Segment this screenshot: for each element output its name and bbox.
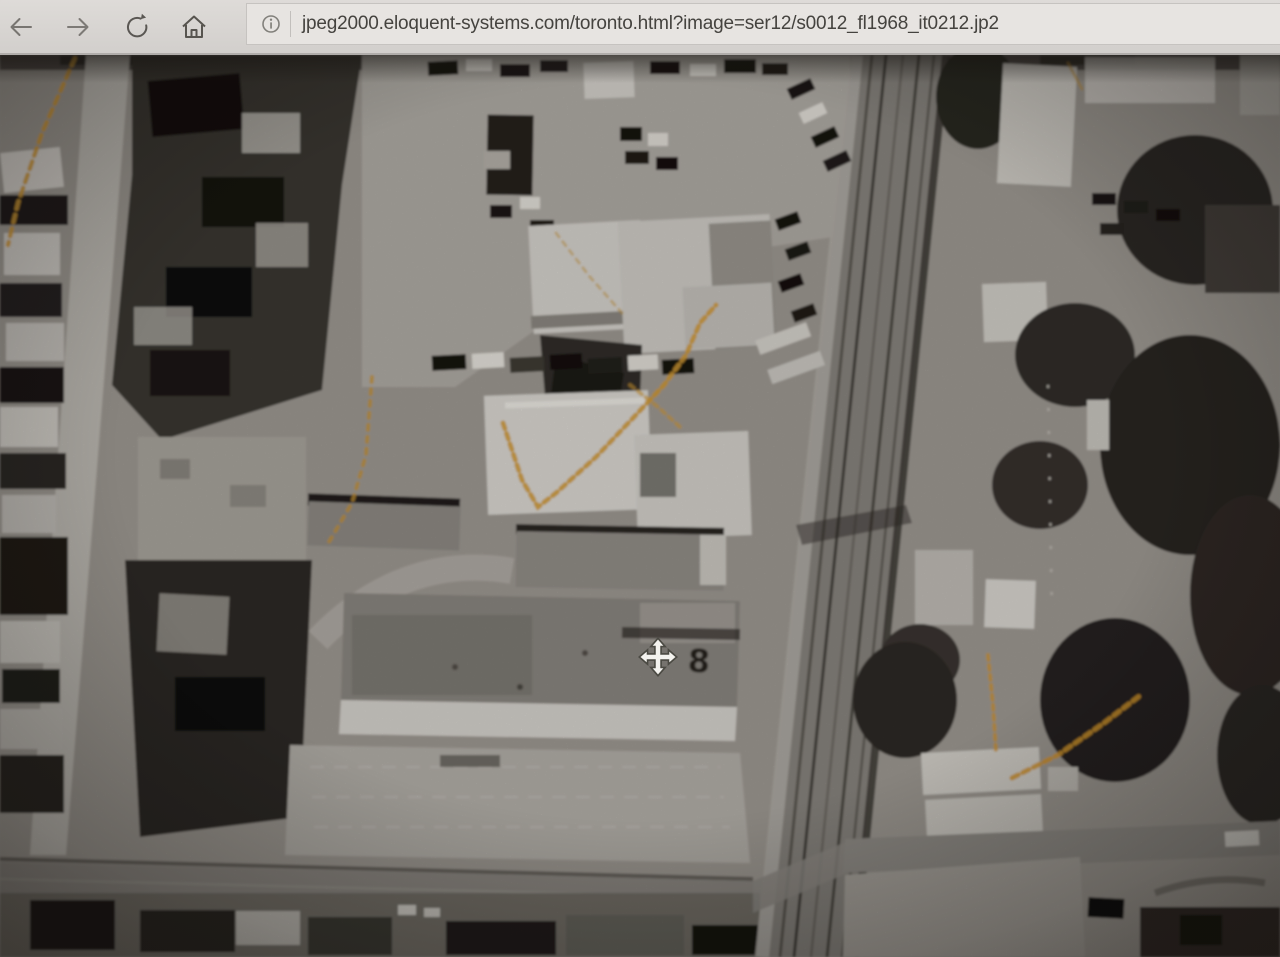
home-button[interactable]	[179, 12, 209, 42]
address-bar[interactable]: jpeg2000.eloquent-systems.com/toronto.ht…	[246, 3, 1280, 45]
refresh-icon	[122, 12, 152, 42]
aerial-photo: 8	[0, 55, 1280, 957]
aerial-photo-viewport[interactable]: 8	[0, 55, 1280, 957]
url-text[interactable]: jpeg2000.eloquent-systems.com/toronto.ht…	[302, 13, 999, 35]
browser-toolbar: jpeg2000.eloquent-systems.com/toronto.ht…	[0, 0, 1280, 55]
page-root: jpeg2000.eloquent-systems.com/toronto.ht…	[0, 0, 1280, 957]
forward-button[interactable]	[63, 12, 93, 42]
info-icon[interactable]	[261, 14, 281, 34]
back-button[interactable]	[6, 12, 36, 42]
photo-vignette	[0, 55, 1280, 957]
back-arrow-icon	[6, 12, 36, 42]
home-icon	[179, 12, 209, 42]
refresh-button[interactable]	[122, 12, 152, 42]
address-separator	[290, 11, 291, 37]
forward-arrow-icon	[63, 12, 93, 42]
